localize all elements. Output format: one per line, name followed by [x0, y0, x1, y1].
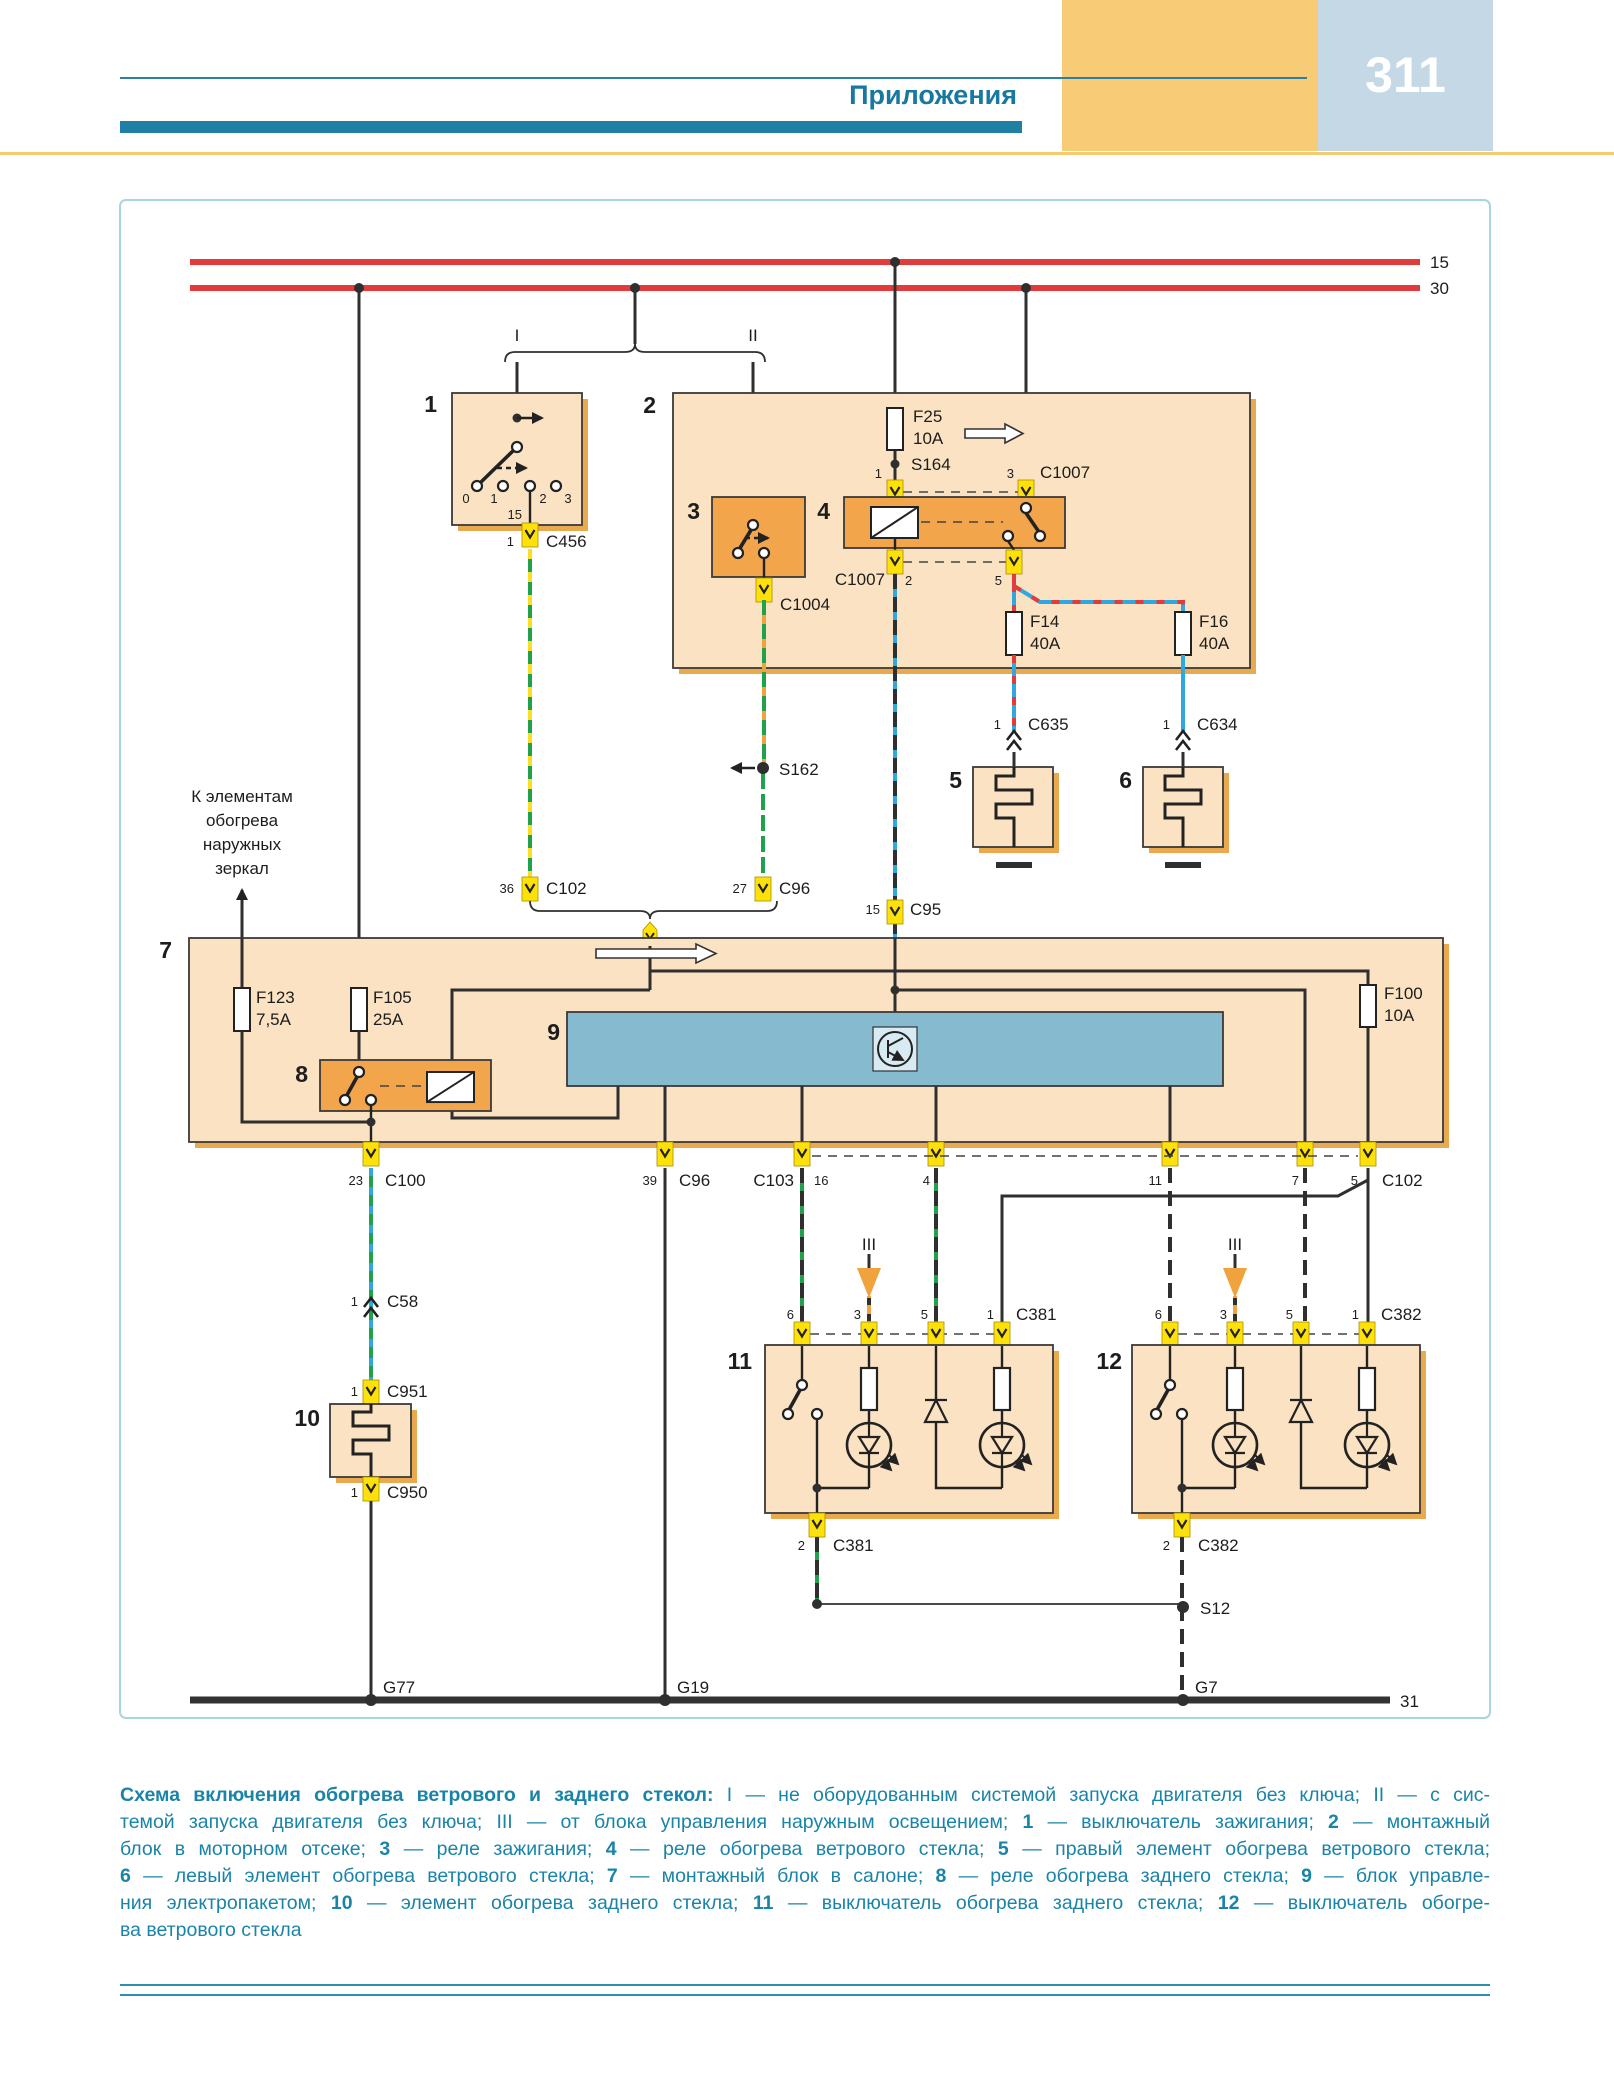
connector-c96-27: 27 C96 — [733, 877, 811, 901]
c634-pin: 1 — [1163, 717, 1170, 732]
ign-pos-3: 3 — [564, 491, 571, 506]
left-windscreen-element-6: 6 — [1119, 767, 1229, 868]
windscreen-heater-relay-4: 4 — [817, 497, 1065, 550]
c382-pin3: 3 — [1220, 1307, 1227, 1322]
connector-c381-bottom: 2 C381 — [798, 1513, 1183, 1609]
block-2-number: 2 — [643, 392, 656, 418]
c102-pin36: 36 — [500, 881, 514, 896]
c103-pin4: 4 — [923, 1173, 930, 1188]
caption-num: 10 — [331, 1892, 353, 1914]
c1007-pin3: 3 — [1007, 466, 1014, 481]
f105-name: F105 — [373, 988, 412, 1007]
c381-pin1: 1 — [987, 1307, 994, 1322]
caption-divider — [120, 1984, 1490, 1996]
figure-caption: Схема включения обогрева ветрового и зад… — [120, 1782, 1490, 1944]
caption-num: 9 — [1301, 1865, 1312, 1887]
c1007-pin1: 1 — [875, 466, 882, 481]
ground-g77: G77 — [383, 1678, 415, 1697]
block-12-number: 12 — [1096, 1348, 1122, 1374]
manual-page: 311 Приложения — [0, 0, 1614, 2087]
block-9-number: 9 — [547, 1019, 560, 1045]
rail-30-label: 30 — [1430, 279, 1449, 298]
f100-rating: 10A — [1384, 1006, 1415, 1025]
cabin-box-connector-row: 23 C100 39 C96 C103 16 4 11 7 5 C102 — [349, 1142, 1423, 1190]
rear-window-switch-11: 11 — [728, 1345, 1059, 1519]
c950-label: C950 — [387, 1483, 428, 1502]
caption-seg: темой запуска двигателя без ключа; III —… — [120, 1811, 1023, 1833]
c456-pin: 1 — [507, 534, 514, 549]
block-7-number: 7 — [159, 937, 172, 963]
f16-rating: 40A — [1199, 634, 1230, 653]
caption-line-6: ва ветрового стекла — [120, 1917, 1490, 1944]
c102-pin11: 11 — [1149, 1173, 1163, 1188]
c103-pin16: 16 — [814, 1173, 828, 1188]
c382-pin5: 5 — [1286, 1307, 1293, 1322]
windscreen-switch-12: 12 — [1096, 1345, 1426, 1519]
caption-seg: — выключатель зажигания; — [1033, 1811, 1328, 1833]
c1007-label2: C1007 — [835, 570, 885, 589]
c456-label: C456 — [546, 532, 587, 551]
block-1-number: 1 — [424, 391, 437, 417]
caption-line-4: 6 — левый элемент обогрева ветрового сте… — [120, 1863, 1490, 1890]
caption-line-2: темой запуска двигателя без ключа; III —… — [120, 1809, 1490, 1836]
caption-num: 11 — [753, 1892, 774, 1914]
connector-c381-row: 6 3 5 1 C381 — [787, 1305, 1057, 1346]
caption-seg: — выключатель обогре- — [1239, 1892, 1490, 1914]
power-rail-30: 30 — [190, 279, 1449, 298]
ignition-switch-block-1: 1 0 1 2 3 15 — [424, 391, 588, 531]
power-rail-15: 15 — [190, 253, 1449, 272]
block-4-number: 4 — [817, 498, 830, 524]
c635-pin: 1 — [994, 717, 1001, 732]
c382-label: C382 — [1381, 1305, 1422, 1324]
block-8-number: 8 — [295, 1061, 308, 1087]
block-10-number: 10 — [294, 1405, 320, 1431]
c103-label: C103 — [753, 1171, 794, 1190]
rear-window-element-10: 10 — [294, 1404, 417, 1483]
c381-pin3: 3 — [854, 1307, 861, 1322]
splice-s12: S12 — [1200, 1599, 1230, 1618]
note-line-2: обогрева — [206, 811, 279, 830]
c102-pin7: 7 — [1292, 1173, 1299, 1188]
block-5-number: 5 — [949, 767, 962, 793]
caption-seg: блок в моторном отсеке; — [120, 1838, 379, 1860]
c96-label: C96 — [679, 1171, 710, 1190]
caption-line-5: ния электропакетом; 10 — элемент обогрев… — [120, 1890, 1490, 1917]
caption-seg: — элемент обогрева заднего стекла; — [353, 1892, 753, 1914]
caption-seg: — реле зажигания; — [390, 1838, 605, 1860]
right-windscreen-element-5: 5 — [949, 767, 1059, 868]
variant-ii-label: II — [748, 326, 757, 345]
c951-label: C951 — [387, 1382, 428, 1401]
mirror-heating-note: К элементам обогрева наружных зеркал — [191, 787, 293, 938]
roman-iii-right: III — [1228, 1235, 1242, 1254]
note-line-3: наружных — [203, 835, 282, 854]
roman-iii-left: III — [862, 1235, 876, 1254]
c96-pin27: 27 — [733, 881, 747, 896]
c382-pin2: 2 — [1163, 1538, 1170, 1553]
c1007-pin5: 5 — [995, 573, 1002, 588]
caption-seg: — реле обогрева ветрового стекла; — [617, 1838, 998, 1860]
c58-label: C58 — [387, 1292, 418, 1311]
c951-pin: 1 — [351, 1384, 358, 1399]
f25-rating: 10A — [913, 429, 944, 448]
c1004-label: C1004 — [780, 595, 830, 614]
c635-label: C635 — [1028, 715, 1069, 734]
f14-rating: 40A — [1030, 634, 1061, 653]
f100-name: F100 — [1384, 984, 1423, 1003]
c100-pin23: 23 — [349, 1173, 363, 1188]
ign-terminal-15: 15 — [508, 507, 522, 522]
connector-c950: 1 C950 — [351, 1477, 428, 1700]
c95-pin15: 15 — [866, 902, 880, 917]
wiring-diagram: 15 30 I II 1 — [0, 0, 1614, 2087]
caption-seg: ва ветрового стекла — [120, 1919, 302, 1941]
connector-c95: 15 C95 — [866, 900, 942, 924]
block-3-number: 3 — [687, 498, 700, 524]
c1007-pin2: 2 — [905, 573, 912, 588]
rail-15-label: 15 — [1430, 253, 1449, 272]
caption-seg: — блок управле- — [1312, 1865, 1490, 1887]
c95-label: C95 — [910, 900, 941, 919]
ign-pos-0: 0 — [462, 491, 469, 506]
caption-num: 8 — [936, 1865, 947, 1887]
caption-line-3: блок в моторном отсеке; 3 — реле зажиган… — [120, 1836, 1490, 1863]
ign-pos-1: 1 — [490, 491, 497, 506]
caption-seg: — левый элемент обогрева ветрового стекл… — [131, 1865, 607, 1887]
caption-seg: ния электропакетом; — [120, 1892, 331, 1914]
splice-s162: S162 — [779, 760, 819, 779]
caption-num: 3 — [379, 1838, 390, 1860]
c382-label2: C382 — [1198, 1536, 1239, 1555]
c382-pin6: 6 — [1155, 1307, 1162, 1322]
f16-name: F16 — [1199, 612, 1228, 631]
caption-num: 1 — [1023, 1811, 1034, 1833]
f105-rating: 25A — [373, 1010, 404, 1029]
caption-line-1: Схема включения обогрева ветрового и зад… — [120, 1782, 1490, 1809]
c96-label-top: C96 — [779, 879, 810, 898]
f14-name: F14 — [1030, 612, 1059, 631]
c381-label2: C381 — [833, 1536, 874, 1555]
splice-s164: S164 — [911, 455, 951, 474]
ground-rail-31: 31 G77 G19 G7 — [190, 1678, 1419, 1711]
caption-title: Схема включения обогрева ветрового и зад… — [120, 1784, 714, 1806]
caption-num: 4 — [606, 1838, 617, 1860]
c381-label: C381 — [1016, 1305, 1057, 1324]
c1007-label: C1007 — [1040, 463, 1090, 482]
caption-seg: — монтажный блок в салоне; — [618, 1865, 936, 1887]
caption-num: 2 — [1328, 1811, 1339, 1833]
ground-g7: G7 — [1195, 1678, 1218, 1697]
ground-g19: G19 — [677, 1678, 709, 1697]
c381-pin5: 5 — [921, 1307, 928, 1322]
ign-pos-2: 2 — [539, 491, 546, 506]
caption-num: 12 — [1218, 1892, 1240, 1914]
c950-pin: 1 — [351, 1485, 358, 1500]
connector-c58: 1 C58 — [351, 1292, 418, 1317]
note-line-1: К элементам — [191, 787, 293, 806]
block-11-number: 11 — [728, 1348, 753, 1374]
connector-c382-row: 6 3 5 1 C382 — [1155, 1305, 1422, 1346]
block-6-number: 6 — [1119, 767, 1132, 793]
c58-pin: 1 — [351, 1294, 358, 1309]
caption-seg: I — не оборудованным системой запуска дв… — [714, 1784, 1490, 1806]
f123-name: F123 — [256, 988, 295, 1007]
f25-name: F25 — [913, 407, 942, 426]
caption-num: 6 — [120, 1865, 131, 1887]
caption-seg: — выключатель обогрева заднего стекла; — [773, 1892, 1217, 1914]
c381-pin2: 2 — [798, 1538, 805, 1553]
caption-num: 5 — [998, 1838, 1009, 1860]
c102-label-top: C102 — [546, 879, 587, 898]
c96-pin39: 39 — [643, 1173, 657, 1188]
caption-num: 7 — [607, 1865, 618, 1887]
c100-label: C100 — [385, 1171, 426, 1190]
connector-c382-bottom: 2 C382 S12 — [1163, 1513, 1239, 1700]
connector-c951: 1 C951 — [351, 1380, 428, 1404]
f123-rating: 7,5A — [256, 1010, 292, 1029]
connector-c102-36: 36 C102 — [500, 877, 587, 901]
note-line-4: зеркал — [215, 859, 269, 878]
c634-label: C634 — [1197, 715, 1238, 734]
c102-label: C102 — [1382, 1171, 1423, 1190]
variant-i-label: I — [515, 326, 520, 345]
caption-seg: — правый элемент обогрева ветрового стек… — [1009, 1838, 1490, 1860]
caption-seg: — монтажный — [1339, 1811, 1490, 1833]
c381-pin6: 6 — [787, 1307, 794, 1322]
caption-seg: — реле обогрева заднего стекла; — [946, 1865, 1301, 1887]
c382-pin1: 1 — [1352, 1307, 1359, 1322]
ground-31-label: 31 — [1400, 1692, 1419, 1711]
